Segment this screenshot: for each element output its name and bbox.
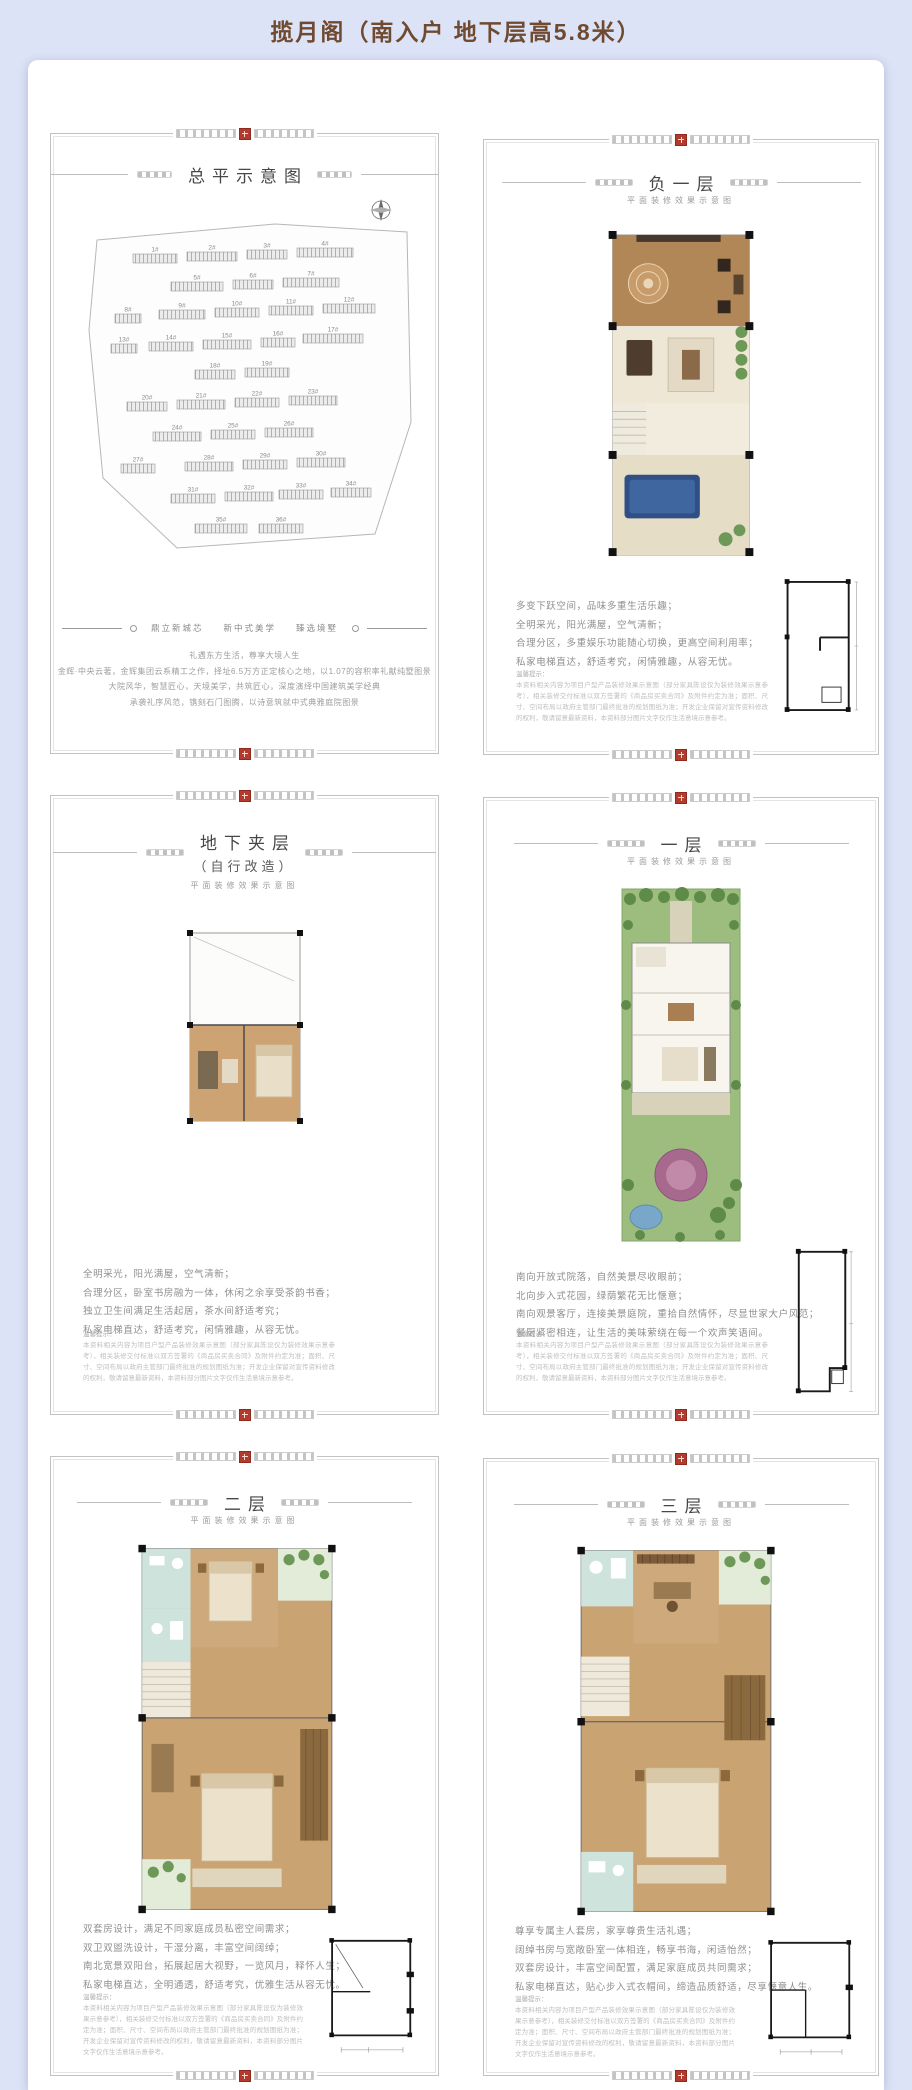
red-seal-icon: [675, 792, 687, 804]
svg-text:9#: 9#: [178, 303, 186, 310]
svg-text:24#: 24#: [172, 425, 183, 432]
ornament-dash: [612, 750, 672, 759]
notice-body: 本资料相关内容为项目户型产品装修效果示意图（部分家具陈设仅为装修效果示意参考），…: [83, 1340, 335, 1384]
red-seal-icon: [239, 1451, 251, 1463]
ornament-dash: [690, 793, 750, 802]
svg-text:2#: 2#: [208, 245, 216, 252]
description-line: 南北宽景双阳台，拓展起居大视野，一览风月，释怀人生；: [83, 1958, 346, 1972]
seal-ornament: [609, 1452, 753, 1465]
red-seal-icon: [239, 128, 251, 140]
site-plan-map: 1#2#3#4#5#6#7#8#9#10#11#12#13#14#15#16#1…: [75, 182, 415, 612]
flourish-ornament: [607, 840, 645, 847]
flourish-line: [77, 1502, 161, 1503]
flourish-line: [514, 1504, 598, 1505]
unit-outline-schematic: [778, 571, 864, 721]
panel-title-row: 二层: [51, 1490, 438, 1515]
flourish-ornament: [607, 1501, 645, 1508]
ornament-dash: [176, 1452, 236, 1461]
svg-text:1#: 1#: [151, 247, 159, 254]
panel-subtitle: 平面装修效果示意图: [484, 856, 878, 867]
seal-ornament: [173, 2069, 317, 2082]
description-line: 南向观景客厅，连接美景庭院，重拾自然情怀，尽显世家大户风范；: [516, 1306, 819, 1320]
svg-text:21#: 21#: [196, 393, 207, 400]
unit-outline-schematic: [762, 1937, 862, 2065]
notice-title: 温馨提示：: [83, 1991, 303, 2001]
ornament-dash: [612, 1410, 672, 1419]
panel-floor-1: 一层 平面装修效果示意图 南向开放式院落，自然美景尽收眼前； 北向步入式花园，绿…: [483, 797, 879, 1415]
panel-subtitle: 平面装修效果示意图: [484, 195, 878, 206]
description-line: 南向开放式院落，自然美景尽收眼前；: [516, 1269, 819, 1283]
panel-floor-2: 二层 平面装修效果示意图 双套房设计，满足不同家庭成员私密空间需求； 双卫双盥洗…: [50, 1456, 439, 2076]
description-line: 多变下跃空间，品味多重生活乐趣；: [516, 598, 758, 612]
notice-block: 温馨提示： 本资料相关内容为项目户型产品装修效果示意图（部分家具陈设仅为装修效果…: [516, 668, 768, 724]
ornament-dash: [176, 749, 236, 758]
ornament-dash: [690, 1454, 750, 1463]
ornament-dash: [690, 135, 750, 144]
floor-plan-b1: [606, 229, 756, 561]
seal-ornament: [173, 789, 317, 802]
svg-text:19#: 19#: [262, 361, 273, 368]
flourish-line: [352, 852, 436, 853]
svg-text:26#: 26#: [284, 421, 295, 428]
svg-text:7#: 7#: [307, 271, 315, 278]
notice-block: 温馨提示： 本资料相关内容为项目户型产品装修效果示意图（部分家具陈设仅为装修效果…: [515, 1993, 735, 2060]
svg-text:29#: 29#: [260, 453, 271, 460]
notice-title: 温馨提示：: [516, 668, 768, 678]
tagline-dot: [352, 625, 359, 632]
flourish-ornament: [317, 171, 352, 178]
svg-text:3#: 3#: [263, 243, 271, 250]
tagline-line: [367, 628, 427, 629]
seal-ornament: [173, 127, 317, 140]
floor-description: 多变下跃空间，品味多重生活乐趣； 全明采光，阳光满屋，空气清新； 合理分区，多重…: [516, 598, 758, 672]
compass-rose-icon: [370, 199, 392, 221]
description-line: 北向步入式花园，绿荫繁花无比惬意；: [516, 1288, 819, 1302]
description-line: 全明采光，阳光满屋，空气清新；: [83, 1266, 336, 1280]
description-line: 双卫双盥洗设计，干湿分离，丰富空间阔绰；: [83, 1940, 346, 1954]
floor-plan-mezzanine: [186, 929, 304, 1125]
svg-text:28#: 28#: [204, 455, 215, 462]
unit-outline-schematic: [790, 1246, 856, 1401]
site-plan-paragraph: 礼遇东方生活，尊享大境人生 金辉·中央云著，金辉集团云系精工之作，择址6.5万方…: [51, 650, 438, 712]
seal-ornament: [609, 748, 753, 761]
notice-block: 温馨提示： 本资料相关内容为项目户型产品装修效果示意图（部分家具陈设仅为装修效果…: [516, 1328, 768, 1384]
panel-title: 负一层: [642, 170, 721, 195]
red-seal-icon: [675, 1453, 687, 1465]
ornament-dash: [690, 1410, 750, 1419]
notice-block: 温馨提示： 本资料相关内容为项目户型产品装修效果示意图（部分家具陈设仅为装修效果…: [83, 1991, 303, 2058]
panel-floor-b1: 负一层 平面装修效果示意图 多变下跃空间，品味多重生活乐趣； 全明采光，阳光满屋…: [483, 139, 879, 755]
svg-text:31#: 31#: [188, 487, 199, 494]
red-seal-icon: [239, 1409, 251, 1421]
panel-subtitle: 平面装修效果示意图: [484, 1517, 878, 1528]
red-seal-icon: [239, 2070, 251, 2082]
flourish-line: [53, 852, 137, 853]
tagline-row: 鼎立新城芯 新中式美学 臻选境墅: [51, 622, 438, 634]
description-line: 尊享专属主人套房，家享尊贵生活礼遇；: [515, 1923, 818, 1937]
ornament-dash: [254, 749, 314, 758]
ornament-dash: [254, 2071, 314, 2080]
description-line: 合理分区，卧室书房融为一体，休闲之余享受茶韵书香；: [83, 1285, 336, 1299]
description-line: 私家电梯直达，全明通透，舒适考究，优雅生活从容无忧。: [83, 1977, 346, 1991]
red-seal-icon: [239, 790, 251, 802]
panel-title: 地下夹层: [193, 829, 296, 854]
seal-ornament: [609, 791, 753, 804]
floor-plan-1: [618, 885, 744, 1245]
notice-title: 温馨提示：: [83, 1328, 335, 1338]
svg-text:25#: 25#: [228, 423, 239, 430]
ornament-dash: [612, 2071, 672, 2080]
panel-floor-3: 三层 平面装修效果示意图 尊享专属主人套房，家享尊贵生活礼遇； 阔绰书房与宽敞卧…: [483, 1458, 879, 2076]
notice-title: 温馨提示：: [516, 1328, 768, 1338]
flourish-line: [765, 843, 849, 844]
ornament-dash: [612, 135, 672, 144]
panel-subtitle: 平面装修效果示意图: [51, 880, 438, 891]
flourish-ornament: [305, 849, 343, 856]
ornament-dash: [176, 2071, 236, 2080]
flourish-line: [502, 182, 586, 183]
floor-description: 双套房设计，满足不同家庭成员私密空间需求； 双卫双盥洗设计，干湿分离，丰富空间阔…: [83, 1921, 346, 1995]
red-seal-icon: [239, 748, 251, 760]
seal-ornament: [173, 1408, 317, 1421]
panel-title: 一层: [654, 831, 709, 856]
svg-text:13#: 13#: [119, 337, 130, 344]
panel-floor-mezzanine: 地下夹层 （自行改造） 平面装修效果示意图 全明采光，阳光满屋，空气清新； 合理…: [50, 795, 439, 1415]
ornament-dash: [690, 750, 750, 759]
brochure-page: { "page": { "header_title": "揽月阁（南入户 地下层…: [0, 0, 912, 2090]
panel-title: 总平示意图: [181, 162, 308, 187]
panel-subtitle: 平面装修效果示意图: [51, 1515, 438, 1526]
red-seal-icon: [675, 1409, 687, 1421]
red-seal-icon: [675, 134, 687, 146]
notice-body: 本资料相关内容为项目户型产品装修效果示意图（部分家具陈设仅为装修效果示意参考），…: [516, 680, 768, 724]
flourish-ornament: [170, 1499, 208, 1506]
panel-title-row: 负一层: [484, 170, 878, 195]
svg-text:23#: 23#: [308, 389, 319, 396]
panel-title-note: （自行改造）: [193, 856, 296, 875]
paragraph-line: 承袭礼序风范，镌刻石门图腾，以诗意筑就中式典雅庭院图景: [51, 697, 438, 708]
svg-text:34#: 34#: [346, 481, 357, 488]
svg-text:15#: 15#: [222, 333, 233, 340]
panel-site-plan: 总平示意图 1#2#3#4#5#6#7#8#9#10#11#12#13#14#1…: [50, 133, 439, 754]
flourish-ornament: [137, 171, 172, 178]
svg-text:36#: 36#: [276, 517, 287, 524]
panel-title-row: 一层: [484, 831, 878, 856]
svg-text:14#: 14#: [166, 335, 177, 342]
svg-text:22#: 22#: [252, 391, 263, 398]
panel-title: 二层: [217, 1490, 272, 1515]
panel-title-row: 总平示意图: [51, 162, 438, 187]
flourish-ornament: [281, 1499, 319, 1506]
notice-body: 本资料相关内容为项目户型产品装修效果示意图（部分家具陈设仅为装修效果示意参考），…: [516, 1340, 768, 1384]
svg-text:30#: 30#: [316, 451, 327, 458]
description-line: 合理分区，多重娱乐功能随心切换，更高空间利用率；: [516, 635, 758, 649]
flourish-ornament: [146, 849, 184, 856]
ornament-dash: [612, 793, 672, 802]
svg-text:6#: 6#: [249, 273, 257, 280]
tagline-segment: 臻选境墅: [296, 622, 338, 634]
svg-text:5#: 5#: [193, 275, 201, 282]
ornament-dash: [254, 1410, 314, 1419]
svg-text:10#: 10#: [232, 301, 243, 308]
flourish-ornament: [595, 179, 633, 186]
ornament-dash: [612, 1454, 672, 1463]
tagline-segment: 鼎立新城芯: [151, 622, 204, 634]
notice-block: 温馨提示： 本资料相关内容为项目户型产品装修效果示意图（部分家具陈设仅为装修效果…: [83, 1328, 335, 1384]
svg-text:20#: 20#: [142, 395, 153, 402]
flourish-ornament: [718, 1501, 756, 1508]
paragraph-line: 礼遇东方生活，尊享大境人生: [51, 650, 438, 661]
description-line: 私家电梯直达，舒适考究，闲情雅趣，从容无忧。: [516, 654, 758, 668]
panel-title-row: 地下夹层 （自行改造）: [51, 829, 438, 875]
paragraph-line: 大院风华，智慧匠心，天境美学，共筑匠心，深度演绎中国建筑美学经典: [51, 681, 438, 692]
svg-text:18#: 18#: [210, 363, 221, 370]
page-title: 揽月阁（南入户 地下层高5.8米）: [270, 13, 641, 47]
svg-text:35#: 35#: [216, 517, 227, 524]
ornament-dash: [254, 129, 314, 138]
description-line: 全明采光，阳光满屋，空气清新；: [516, 617, 758, 631]
seal-ornament: [173, 1450, 317, 1463]
floor-plan-3: [568, 1545, 784, 1917]
red-seal-icon: [675, 749, 687, 761]
flourish-line: [777, 182, 861, 183]
svg-text:27#: 27#: [133, 457, 144, 464]
flourish-ornament: [730, 179, 768, 186]
svg-text:16#: 16#: [273, 331, 284, 338]
flourish-line: [328, 1502, 412, 1503]
description-line: 双套房设计，满足不同家庭成员私密空间需求；: [83, 1921, 346, 1935]
description-line: 独立卫生间满足生活起居，茶水间舒适考究；: [83, 1303, 336, 1317]
flourish-line: [765, 1504, 849, 1505]
notice-body: 本资料相关内容为项目户型产品装修效果示意图（部分家具陈设仅为装修效果示意参考），…: [515, 2005, 735, 2060]
flourish-line: [51, 174, 128, 175]
seal-ornament: [609, 133, 753, 146]
svg-text:12#: 12#: [344, 297, 355, 304]
ornament-dash: [176, 129, 236, 138]
tagline-line: [62, 628, 122, 629]
ornament-dash: [690, 2071, 750, 2080]
svg-text:11#: 11#: [286, 299, 297, 306]
svg-text:17#: 17#: [328, 327, 339, 334]
paragraph-line: 金辉·中央云著，金辉集团云系精工之作，择址6.5万方正定核心之地，以1.07的容…: [51, 666, 438, 677]
panel-title: 三层: [654, 1492, 709, 1517]
flourish-line: [514, 843, 598, 844]
ornament-dash: [254, 791, 314, 800]
svg-text:4#: 4#: [321, 241, 329, 248]
svg-text:33#: 33#: [296, 483, 307, 490]
seal-ornament: [609, 2069, 753, 2082]
panel-title-row: 三层: [484, 1492, 878, 1517]
svg-text:32#: 32#: [244, 485, 255, 492]
ornament-dash: [254, 1452, 314, 1461]
tagline-dot: [130, 625, 137, 632]
seal-ornament: [173, 747, 317, 760]
unit-outline-schematic: [323, 1935, 423, 2063]
flourish-ornament: [718, 840, 756, 847]
notice-title: 温馨提示：: [515, 1993, 735, 2003]
tagline-segment: 新中式美学: [223, 622, 276, 634]
floor-plan-2: [129, 1543, 345, 1915]
ornament-dash: [176, 1410, 236, 1419]
svg-text:8#: 8#: [124, 307, 132, 314]
notice-body: 本资料相关内容为项目户型产品装修效果示意图（部分家具陈设仅为装修效果示意参考），…: [83, 2003, 303, 2058]
red-seal-icon: [675, 2070, 687, 2082]
ornament-dash: [176, 791, 236, 800]
seal-ornament: [609, 1408, 753, 1421]
page-header: 揽月阁（南入户 地下层高5.8米）: [0, 0, 912, 60]
flourish-line: [361, 174, 438, 175]
